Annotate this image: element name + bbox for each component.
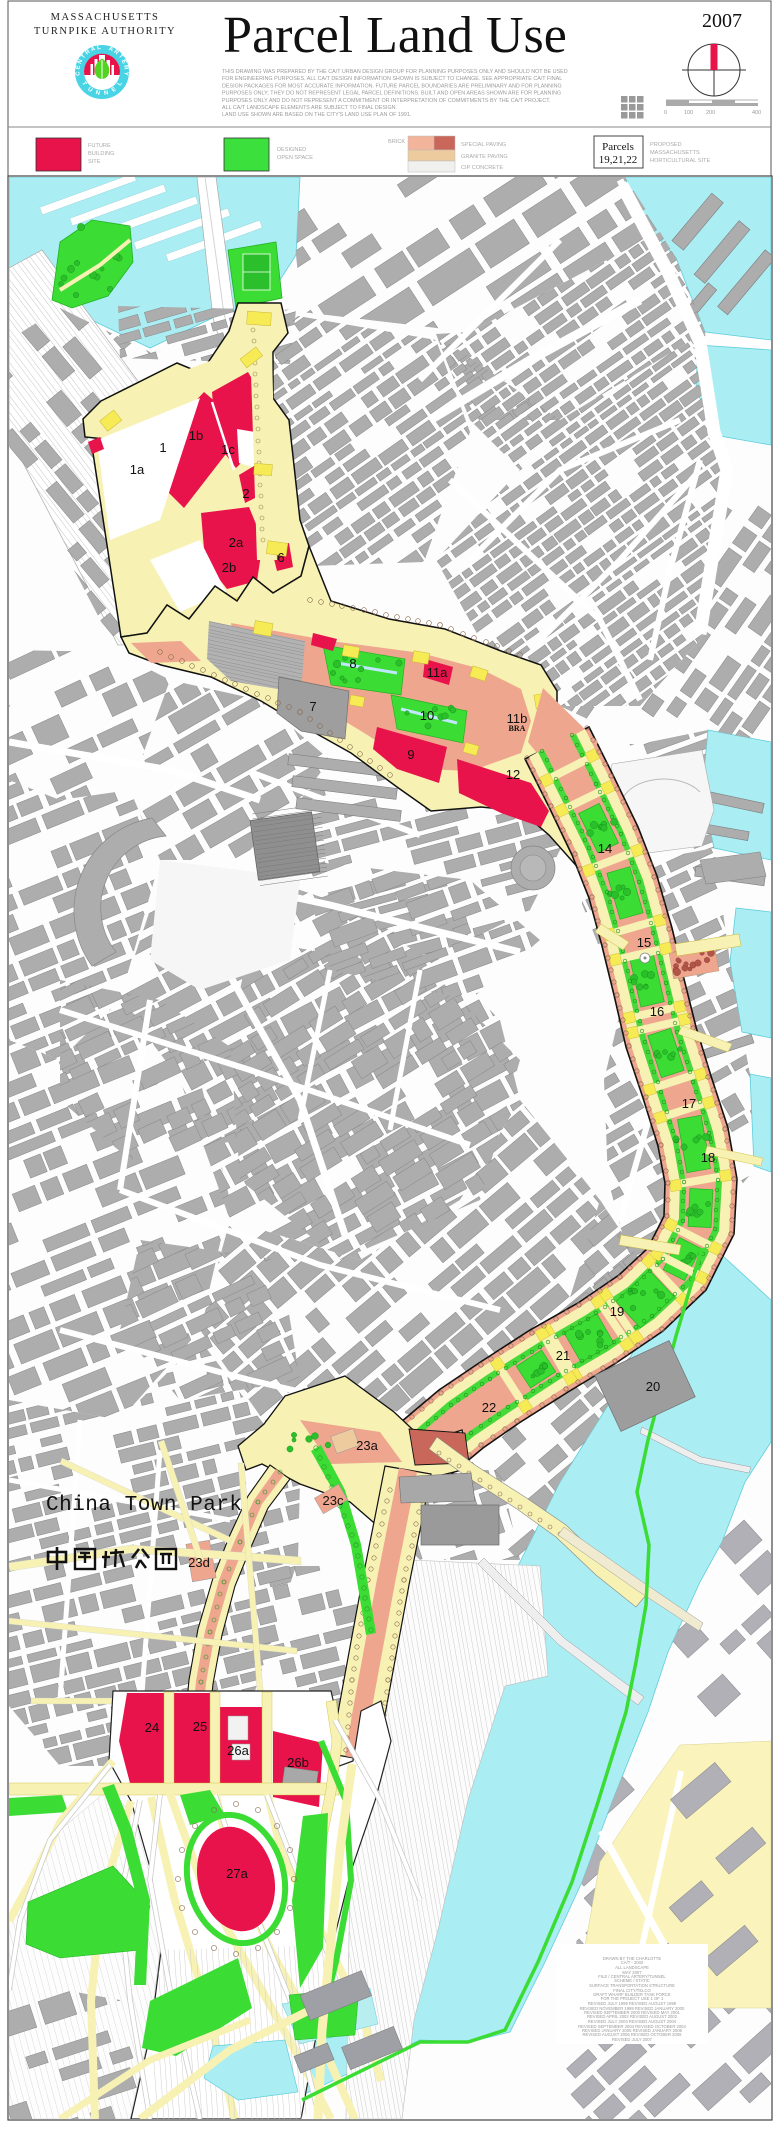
svg-text:100: 100 [684, 110, 693, 116]
svg-text:0: 0 [664, 110, 667, 116]
svg-text:TURNPIKE AUTHORITY: TURNPIKE AUTHORITY [34, 26, 176, 37]
svg-text:GRANITE PAVING: GRANITE PAVING [461, 154, 508, 160]
svg-text:OPEN SPACE: OPEN SPACE [277, 155, 313, 161]
svg-text:MASSACHUSETTS: MASSACHUSETTS [51, 12, 160, 23]
svg-text:400: 400 [752, 110, 761, 116]
svg-text:Parcels: Parcels [602, 141, 634, 153]
svg-text:PURPOSES ONLY; THEY DO NOT REP: PURPOSES ONLY; THEY DO NOT REPRESENT LEG… [222, 91, 561, 97]
svg-text:MASSACHUSETTS: MASSACHUSETTS [650, 150, 700, 156]
svg-text:DESIGNED: DESIGNED [277, 147, 306, 153]
svg-text:ALL CA/T LANDSCAPE ELEMENTS AR: ALL CA/T LANDSCAPE ELEMENTS ARE SUBJECT … [222, 105, 397, 111]
svg-text:19,21,22: 19,21,22 [599, 154, 638, 166]
svg-text:Parcel Land Use: Parcel Land Use [223, 7, 567, 64]
svg-text:DESIGN PACKAGES FOR MOST ACCUR: DESIGN PACKAGES FOR MOST ACCURATE INFORM… [222, 83, 562, 89]
svg-text:FOR ENGINEERING PURPOSES. ALL: FOR ENGINEERING PURPOSES. ALL CA/T DESIG… [222, 76, 562, 82]
svg-text:PURPOSES ONLY AND DO NOT REPRE: PURPOSES ONLY AND DO NOT REPRESENT A COM… [222, 98, 550, 104]
svg-text:SPECIAL PAVING: SPECIAL PAVING [461, 142, 506, 148]
svg-text:BUILDING: BUILDING [88, 151, 114, 157]
svg-text:Y: Y [122, 71, 128, 76]
svg-text:BRICK: BRICK [388, 139, 405, 145]
svg-text:PROPOSED: PROPOSED [650, 142, 682, 148]
svg-text:LAND USE SHOWN ARE BASED ON TH: LAND USE SHOWN ARE BASED ON THE CITY'S L… [222, 112, 411, 118]
svg-text:CIP CONCRETE: CIP CONCRETE [461, 165, 503, 171]
svg-text:2007: 2007 [702, 10, 742, 32]
svg-text:FUTURE: FUTURE [88, 143, 111, 149]
svg-text:HORTICULTURAL SITE: HORTICULTURAL SITE [650, 158, 710, 164]
svg-text:SITE: SITE [88, 159, 101, 165]
svg-text:200: 200 [706, 110, 715, 116]
svg-text:THIS DRAWING WAS PREPARED BY T: THIS DRAWING WAS PREPARED BY THE CA/T UR… [222, 69, 568, 75]
